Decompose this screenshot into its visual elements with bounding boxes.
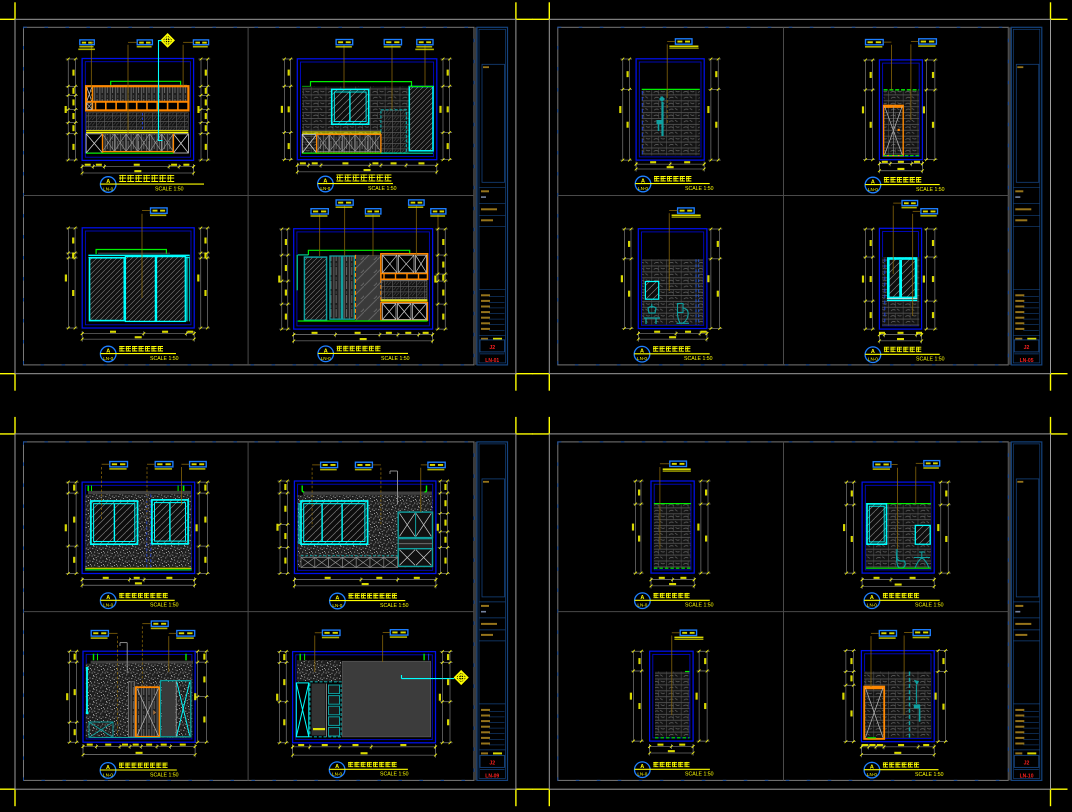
svg-text:LN-05: LN-05 bbox=[1020, 358, 1034, 364]
svg-text:SCALE 1:50: SCALE 1:50 bbox=[916, 357, 945, 363]
svg-text:SCALE 1:50: SCALE 1:50 bbox=[368, 186, 397, 192]
svg-text:J2: J2 bbox=[489, 760, 495, 766]
svg-text:LN-0: LN-0 bbox=[103, 603, 113, 608]
svg-text:SCALE 1:50: SCALE 1:50 bbox=[684, 356, 713, 362]
svg-text:J2: J2 bbox=[1024, 345, 1030, 351]
svg-text:LN-10: LN-10 bbox=[1020, 773, 1034, 779]
svg-text:LN-0: LN-0 bbox=[637, 772, 647, 777]
svg-text:J2: J2 bbox=[489, 345, 495, 351]
svg-text:LN-01: LN-01 bbox=[485, 358, 499, 364]
svg-text:LN-09: LN-09 bbox=[485, 773, 499, 779]
svg-text:SCALE 1:50: SCALE 1:50 bbox=[685, 603, 714, 609]
svg-text:LN-0: LN-0 bbox=[867, 772, 877, 777]
svg-text:SCALE 1:50: SCALE 1:50 bbox=[380, 772, 409, 778]
svg-text:SCALE 1:50: SCALE 1:50 bbox=[381, 356, 410, 362]
svg-text:J2: J2 bbox=[1024, 760, 1030, 766]
svg-text:SCALE 1:50: SCALE 1:50 bbox=[685, 772, 714, 778]
svg-text:SCALE 1:50: SCALE 1:50 bbox=[150, 356, 179, 362]
svg-text:LN-0: LN-0 bbox=[867, 603, 877, 608]
svg-text:LN-0: LN-0 bbox=[638, 186, 648, 191]
svg-text:SCALE 1:50: SCALE 1:50 bbox=[155, 187, 184, 193]
svg-text:LN-0: LN-0 bbox=[332, 772, 342, 777]
svg-text:LN-0: LN-0 bbox=[868, 357, 878, 362]
svg-text:LN-0: LN-0 bbox=[103, 187, 113, 192]
svg-text:SCALE 1:50: SCALE 1:50 bbox=[916, 187, 945, 193]
svg-text:SCALE 1:50: SCALE 1:50 bbox=[685, 186, 714, 192]
svg-text:LN-0: LN-0 bbox=[637, 356, 647, 361]
svg-text:LN-0: LN-0 bbox=[320, 186, 330, 191]
svg-text:SCALE 1:50: SCALE 1:50 bbox=[915, 772, 944, 778]
svg-text:LN-0: LN-0 bbox=[321, 356, 331, 361]
svg-text:LN-0: LN-0 bbox=[868, 187, 878, 192]
svg-text:LN-0: LN-0 bbox=[103, 356, 113, 361]
svg-text:LN-0: LN-0 bbox=[637, 603, 647, 608]
svg-text:SCALE 1:50: SCALE 1:50 bbox=[915, 603, 944, 609]
svg-text:SCALE 1:50: SCALE 1:50 bbox=[150, 772, 179, 778]
svg-text:SCALE 1:50: SCALE 1:50 bbox=[150, 603, 179, 609]
svg-text:SCALE 1:50: SCALE 1:50 bbox=[380, 603, 409, 609]
svg-text:LN-0: LN-0 bbox=[332, 603, 342, 608]
svg-text:LN-0: LN-0 bbox=[103, 772, 113, 777]
